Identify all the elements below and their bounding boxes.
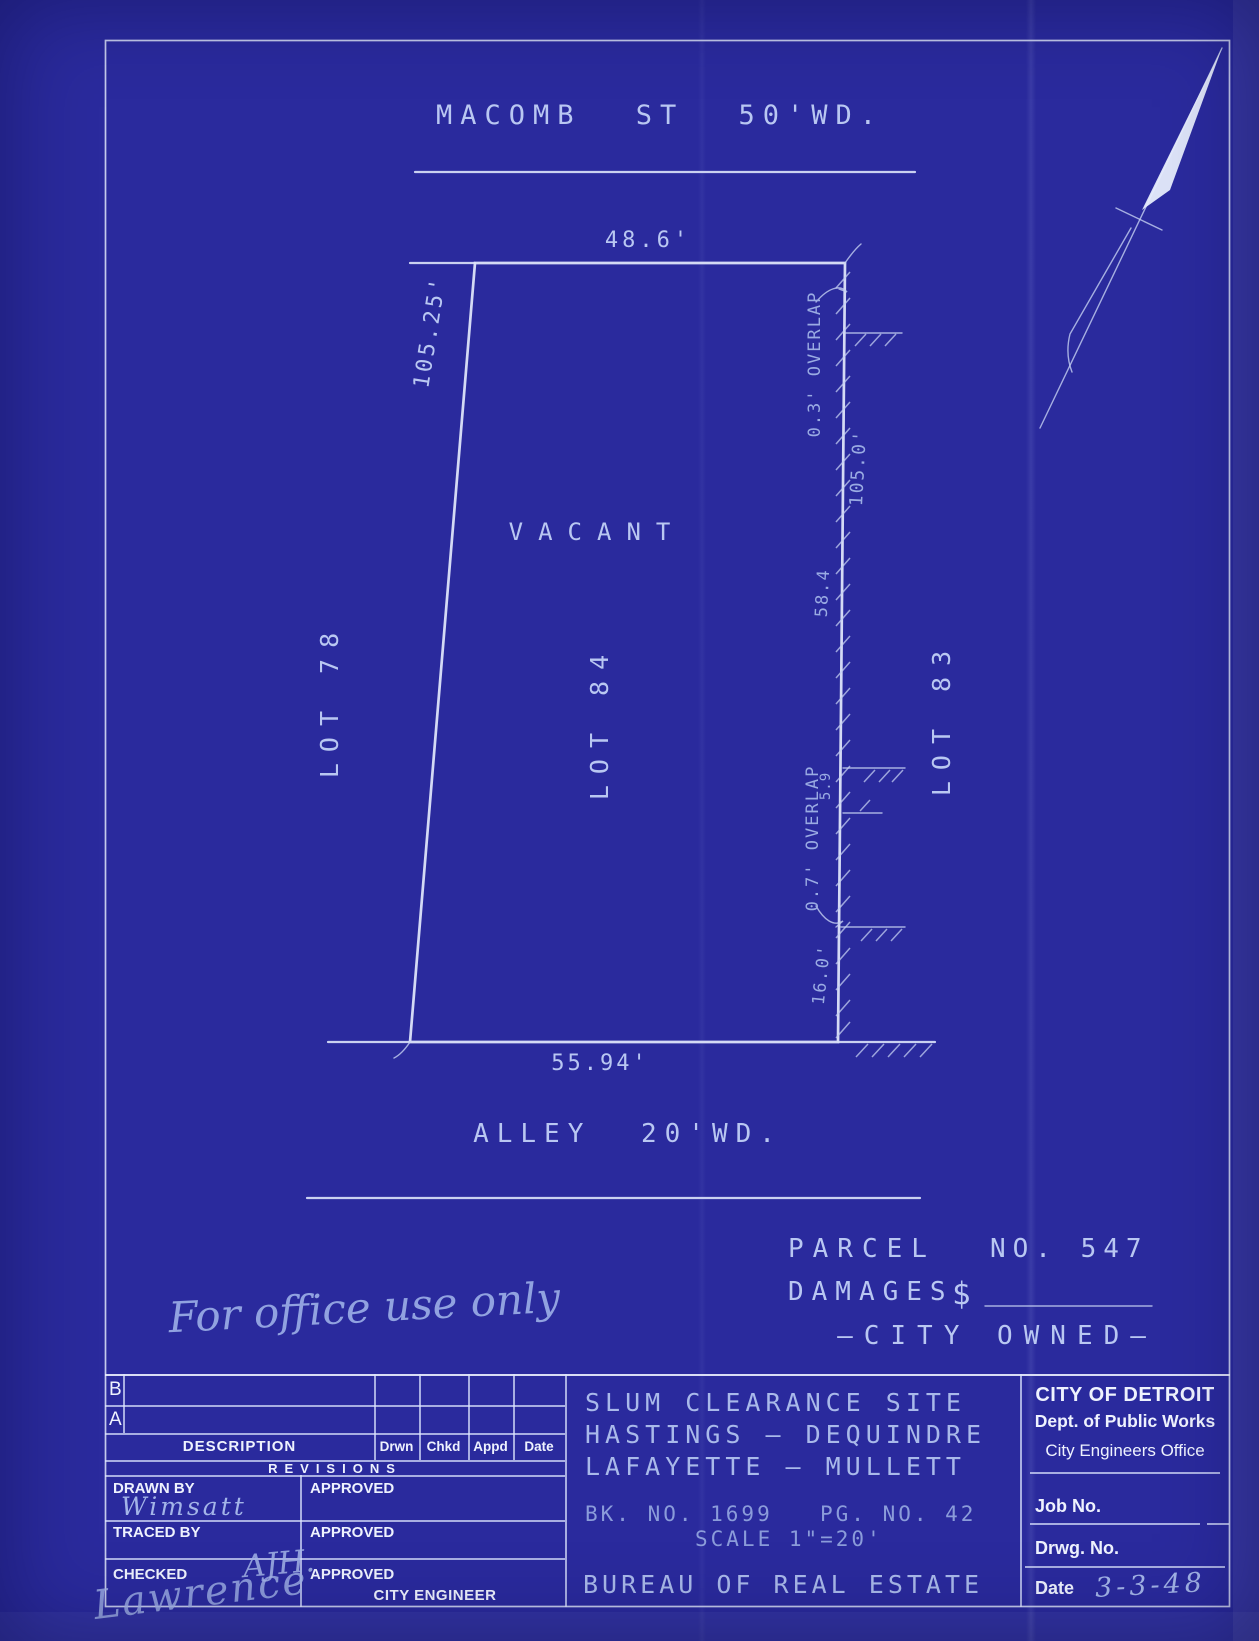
stub-hatch-mid2	[860, 800, 870, 811]
agency-divider	[1030, 1472, 1220, 1474]
frontage-dimension: 48.6'	[605, 228, 691, 253]
city-engineer-label: CITY ENGINEER	[305, 1587, 565, 1604]
revisions-col-date: Date	[513, 1439, 565, 1454]
rev-line-1	[105, 1405, 565, 1407]
agency-office: City Engineers Office	[1020, 1441, 1230, 1461]
overlap-north-label: 0.3' OVERLAP	[805, 291, 825, 438]
north-arrow-head	[1142, 48, 1222, 210]
title-block-top-border	[105, 1374, 1230, 1376]
sheet-right-edge	[1233, 0, 1259, 1641]
rev-line-2	[105, 1433, 565, 1435]
project-line-2: HASTINGS — DEQUINDRE	[585, 1420, 986, 1449]
lot-78-label: LOT 78	[315, 622, 344, 778]
lot-83-label: LOT 83	[927, 640, 956, 796]
sheet-bottom-edge	[0, 1612, 1259, 1641]
approved-label-2: APPROVED	[310, 1524, 394, 1541]
stub-hatch-north	[855, 334, 896, 346]
sig-line-2	[105, 1558, 565, 1560]
damages-label: DAMAGES	[788, 1277, 954, 1307]
date-value: 3-3-48	[1094, 1567, 1206, 1604]
divider-mid-right	[1020, 1374, 1022, 1607]
agency-name: CITY OF DETROIT	[1020, 1384, 1230, 1407]
approved-label-1: APPROVED	[310, 1480, 394, 1497]
bureau-label: BUREAU OF REAL ESTATE	[583, 1570, 983, 1599]
date-label: Date	[1035, 1578, 1074, 1599]
revisions-col-appd: Appd	[468, 1439, 513, 1454]
job-no-line	[1030, 1523, 1200, 1525]
revisions-col-drwn: Drwn	[374, 1439, 419, 1454]
revisions-col-description: DESCRIPTION	[105, 1438, 374, 1455]
office-use-note: For office use only	[166, 1273, 562, 1343]
dim-5-9: 5.9	[818, 772, 834, 800]
title-block: B A DESCRIPTION Drwn Chkd Appd Date REVI…	[105, 1374, 1230, 1607]
agency-dept: Dept. of Public Works	[1020, 1411, 1230, 1432]
street-name-label: MACOMB ST 50'WD.	[436, 100, 884, 131]
parcel-number: NO. 547	[990, 1234, 1149, 1264]
paper-crease-faint	[698, 0, 706, 1641]
rev-rowletter-tick	[123, 1374, 125, 1433]
north-arrow-icon	[1040, 48, 1222, 428]
west-dimension: 105.25'	[409, 274, 451, 390]
stub-hatch-south	[861, 929, 902, 941]
east-dimension: 105.0'	[846, 429, 871, 507]
page-number: PG. NO. 42	[820, 1502, 976, 1526]
corner-flourish	[845, 244, 861, 263]
page-border	[106, 41, 1230, 1607]
paper-crease	[1026, 0, 1036, 1641]
lot-84-label: LOT 84	[585, 644, 614, 800]
revision-row-a: A	[109, 1409, 122, 1431]
revision-row-b: B	[109, 1379, 122, 1401]
alley-corner-hatch	[856, 1044, 932, 1057]
vacant-label: VACANT	[509, 518, 686, 546]
revisions-title: REVISIONS	[105, 1461, 565, 1476]
approved-label-3: APPROVED	[310, 1566, 394, 1583]
drawn-by-value: Wimsatt	[121, 1492, 247, 1521]
project-line-1: SLUM CLEARANCE SITE	[585, 1388, 966, 1417]
book-number: BK. NO. 1699	[585, 1502, 773, 1526]
drwg-no-label: Drwg. No.	[1035, 1538, 1119, 1559]
rear-dimension: 55.94'	[551, 1051, 648, 1076]
parcel-boundary	[410, 263, 845, 1042]
corner-flourish-sw	[394, 1042, 410, 1058]
scale-note: SCALE 1"=20'	[695, 1527, 883, 1551]
divider-left-mid	[565, 1374, 567, 1607]
revisions-col-chkd: Chkd	[419, 1439, 468, 1454]
project-line-3: LAFAYETTE — MULLETT	[585, 1452, 966, 1481]
blueprint-sheet: MACOMB ST 50'WD. 48.6' 105.25' VACANT LO…	[0, 0, 1259, 1641]
alley-label: ALLEY 20'WD.	[473, 1119, 783, 1149]
job-no-label: Job No.	[1035, 1496, 1101, 1517]
damages-dollar-sign: $	[952, 1276, 971, 1312]
stub-hatch-mid1	[864, 770, 903, 782]
traced-by-label: TRACED BY	[113, 1524, 201, 1541]
parcel-label: PARCEL	[788, 1234, 936, 1264]
north-arrow-crossbar	[1116, 208, 1162, 230]
job-no-line-end	[1207, 1523, 1229, 1525]
dim-16-0: 16.0'	[809, 943, 835, 1006]
dim-58-4: 58.4	[812, 568, 835, 618]
city-owned-label: —CITY OWNED—	[837, 1321, 1157, 1351]
